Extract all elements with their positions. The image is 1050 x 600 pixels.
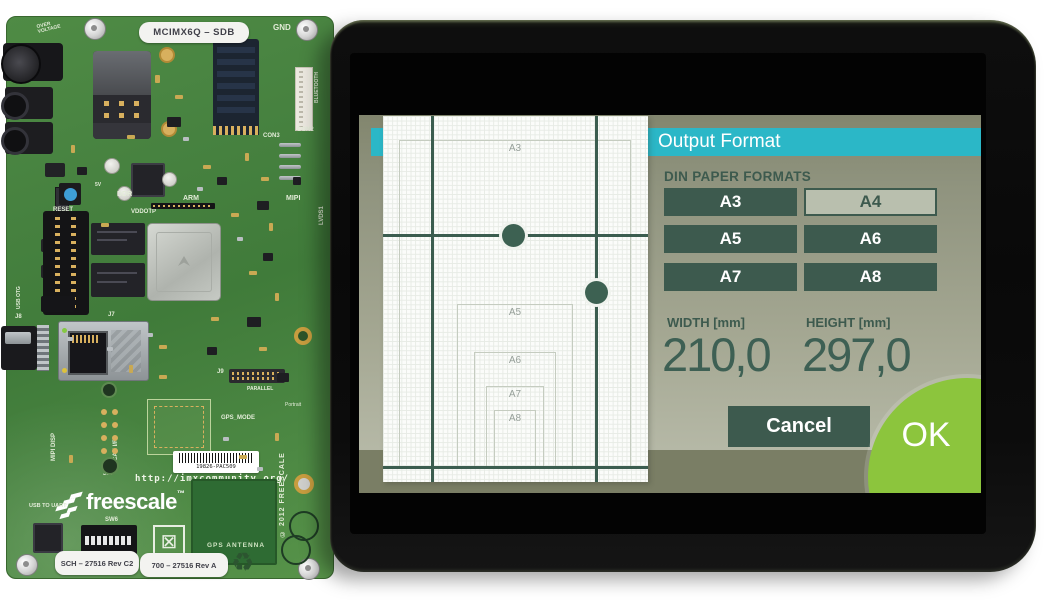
test-pin-3: [279, 165, 301, 169]
ddr-label: DDR: [117, 191, 132, 198]
ffc-connector: [295, 67, 313, 131]
reset-button-cap: [64, 188, 77, 201]
j8-label: J8: [15, 314, 22, 320]
width-guide-left: [431, 116, 434, 482]
parallel-label: PARALLEL: [247, 387, 273, 392]
format-button-a4[interactable]: A4: [804, 188, 937, 216]
j7-label: J7: [108, 312, 115, 318]
audio-jack-1-port: [1, 92, 29, 120]
paper-format-preview: A3 A4 A5 A6 A7 A8: [383, 116, 648, 482]
recycle-icon: ♻: [231, 549, 254, 575]
width-value: 210,0: [662, 331, 770, 378]
height-drag-handle[interactable]: [502, 224, 525, 247]
small-connector: [41, 296, 75, 312]
gold-pad-grid: [99, 407, 121, 459]
con2-label: CON2: [297, 127, 314, 133]
board-rev-sticker: 700 – 27516 Rev A: [140, 553, 228, 577]
mini-pcie-module: [213, 39, 259, 135]
ethernet-jack: [58, 321, 149, 381]
copyright-label: © 2012 FREESCALE: [279, 417, 286, 537]
gps-mode-label: GPS_MODE: [221, 415, 255, 421]
vddotp-label: VDDOTP: [131, 209, 156, 215]
trademark-symbol: ™: [177, 489, 185, 498]
a6-preview-label: A6: [509, 355, 521, 366]
a7-preview-label: A7: [509, 389, 521, 400]
format-button-a8[interactable]: A8: [804, 263, 937, 291]
via-hole-1: [101, 382, 117, 398]
ethernet-led-amber: [62, 368, 67, 373]
screw-bottom-left: [16, 554, 38, 576]
board-name-sticker: MCIMX6Q – SDB: [139, 22, 249, 43]
power-jack-barrel: [1, 44, 41, 84]
screw-top-right: [296, 19, 318, 41]
mipi-label: MIPI: [286, 195, 300, 202]
sim-card-holder: [93, 51, 151, 139]
screenshot-root: RESET BLUETOOTH: [0, 0, 1050, 600]
tablet-screen: Output Format A3 A4 A5 A6 A7 A8: [350, 53, 986, 534]
5v-label: 5V: [95, 183, 101, 188]
cpu-imx6: [147, 223, 221, 301]
screen-content: Output Format A3 A4 A5 A6 A7 A8: [359, 115, 981, 493]
inductor-1: [104, 158, 120, 174]
a8-preview-label: A8: [509, 413, 521, 424]
gps-module-footprint: [147, 399, 211, 455]
via-hole-2: [101, 457, 119, 475]
freescale-logo-text: freescale™: [86, 490, 184, 513]
cancel-button[interactable]: Cancel: [728, 406, 870, 447]
hdmi-pins: [37, 325, 49, 371]
dev-board-photo: RESET BLUETOOTH: [6, 16, 334, 579]
height-value: 297,0: [802, 331, 910, 378]
usb-otg-label: USB OTG: [17, 273, 22, 309]
sch-rev-sticker: SCH – 27516 Rev C2: [55, 551, 139, 575]
lvds1-label: LVDS1: [319, 185, 325, 225]
test-pin-2: [279, 154, 301, 158]
pcie-mount-pad-1: [159, 47, 175, 63]
format-button-a5[interactable]: A5: [664, 225, 797, 253]
cert-stamp-2: [281, 535, 311, 565]
a5-preview-label: A5: [509, 307, 521, 318]
ok-button[interactable]: OK: [868, 378, 981, 493]
a3-preview-label: A3: [509, 143, 521, 154]
ram-chip-1: [91, 223, 145, 255]
screw-gold-ring: [294, 474, 314, 494]
pmic-chip: [131, 163, 165, 197]
audio-jack-2-port: [1, 127, 29, 155]
uart-chip: [33, 523, 63, 553]
height-guide-bottom: [383, 466, 648, 469]
pin-row-footprint: [151, 203, 215, 209]
screw-top-left: [84, 18, 106, 40]
j9-label: J9: [217, 369, 224, 375]
ethernet-led-green: [62, 328, 67, 333]
over-voltage-label: OVER VOLTAGE: [36, 17, 72, 35]
mount-hole-gold: [294, 327, 312, 345]
ok-button-label: OK: [886, 416, 966, 455]
width-drag-handle[interactable]: [585, 281, 608, 304]
test-pin-1: [279, 143, 301, 147]
con3-label: CON3: [263, 133, 280, 139]
tablet-device: Output Format A3 A4 A5 A6 A7 A8: [330, 20, 1036, 572]
arm-label: ARM: [183, 195, 199, 202]
bluetooth-label: BLUETOOTH: [315, 53, 320, 103]
mipi-disp-label: MIPI DISP: [51, 409, 57, 461]
power-switch: [45, 163, 65, 177]
inductor-3: [162, 172, 177, 187]
gnd-label: GND: [273, 24, 291, 32]
format-button-a6[interactable]: A6: [804, 225, 937, 253]
ram-chip-2: [91, 263, 145, 297]
din-formats-heading: DIN PAPER FORMATS: [664, 169, 811, 184]
format-button-a3[interactable]: A3: [664, 188, 797, 216]
sw6-label: SW6: [105, 517, 118, 523]
hdmi-connector: [1, 326, 37, 370]
usb-to-uart-label: USB TO UART: [29, 504, 66, 510]
barcode-text: 19826-PAC509: [173, 464, 259, 470]
portrait-label: Portrait: [285, 403, 301, 408]
format-button-a7[interactable]: A7: [664, 263, 797, 291]
